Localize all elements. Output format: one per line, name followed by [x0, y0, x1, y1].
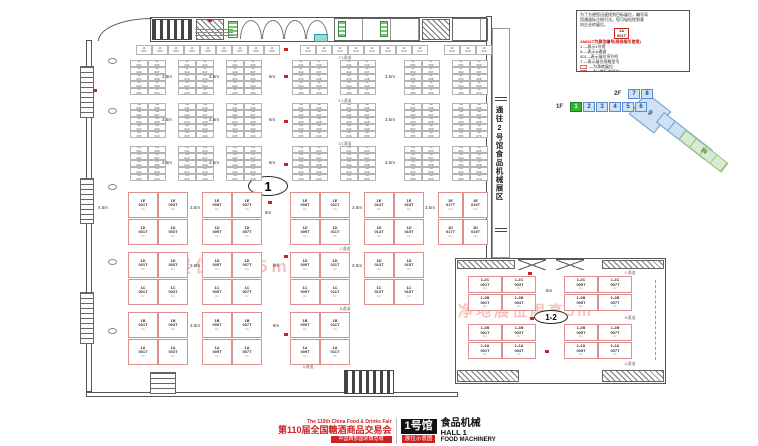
booth-cell: 1F018 [444, 45, 460, 55]
booth-cell: 1D013 [178, 160, 196, 167]
red-marker [268, 201, 272, 204]
booth-cell: 1F030 [244, 88, 262, 95]
booth-cell: 1E069 [470, 124, 488, 131]
booth-cell: 1F003 [130, 74, 148, 81]
aisle-width-label: 3.5m [352, 205, 362, 210]
booth-cell: 1D070 [470, 174, 488, 181]
booth-label: 3m [377, 295, 381, 299]
column-pillar [108, 328, 117, 334]
navigator-hall10[interactable]: 10 [679, 130, 729, 173]
booth-cell: 1E014 [178, 124, 196, 131]
booth-cell: 1E022 [226, 110, 244, 117]
booth-cell: 1-2B007T3m [598, 324, 632, 341]
booth-cell: 1F035 [292, 88, 310, 95]
aisle-width-label: 3.5m [425, 205, 435, 210]
booth-label: 3m [517, 305, 521, 309]
booth-cell: 1E039 [310, 124, 328, 131]
booth-label: 010 [154, 135, 159, 138]
booth-label: 008 [253, 50, 258, 53]
booth-label: 030 [250, 135, 255, 138]
booth-cell: 1E059 [422, 124, 440, 131]
booth-cell: 1D058 [422, 160, 440, 167]
booth-cell: 1E003 [130, 117, 148, 124]
booth-cell: 1D017 [196, 153, 214, 160]
aisle-name-label: C通道 [340, 246, 351, 252]
booth-label: 3m [215, 328, 219, 332]
booth-cell: 1D009T3m [290, 219, 320, 245]
booth-label: 3m [377, 268, 381, 272]
booth-cell: 1F028 [244, 74, 262, 81]
booth-cell: 1F009 [148, 81, 166, 88]
aisle-name-label: C通道 [625, 270, 636, 276]
corridor-tick [495, 97, 507, 101]
booth-cell: 1E027 [244, 110, 262, 117]
booth-cell: 1F053 [404, 74, 422, 81]
booth-cell: 1F050 [358, 88, 376, 95]
escalator-bottom [344, 370, 394, 394]
booth-label: 065 [458, 178, 463, 181]
booth-cell: 1A011T3m [320, 339, 350, 365]
booth-cell: 1E030 [244, 131, 262, 138]
booth-label: 3m [407, 235, 411, 239]
booth-label: 3m [377, 235, 381, 239]
red-marker [284, 333, 288, 336]
escalator-block [152, 19, 192, 40]
hall-badge-sub: 展位示意图 [402, 435, 436, 443]
booth-label: 3m [171, 355, 175, 359]
booth-label: 015 [184, 135, 189, 138]
booth-cell: 1D016 [196, 146, 214, 153]
booth-label: 025 [232, 92, 237, 95]
booth-label: 013 [353, 50, 358, 53]
booth-label: 010 [154, 178, 159, 181]
legend-intro-line: 向企业的展位。 [580, 23, 686, 28]
booth-cell: 1F062 [452, 67, 470, 74]
booth-cell: 1F009 [264, 45, 280, 55]
booth-label: 018 [449, 50, 454, 53]
booth-label: 017 [417, 50, 422, 53]
booth-cell: 1-2A007T3m [598, 342, 632, 359]
footer-divider [396, 418, 397, 444]
booth-label: 040 [316, 135, 321, 138]
booth-cell: 1F019 [460, 45, 476, 55]
booth-label: 005 [136, 178, 141, 181]
booth-cell: 1F020 [196, 88, 214, 95]
booth-cell: 1D036 [310, 146, 328, 153]
booth-cell: 1D001 [130, 146, 148, 153]
booth-label: 3m [171, 268, 175, 272]
stairs-left [80, 66, 94, 118]
booth-cell: 1D053 [404, 160, 422, 167]
booth-label: 004 [189, 50, 194, 53]
booth-cell: 1E052 [404, 110, 422, 117]
booth-cell: 1D015T3m [394, 252, 424, 278]
booth-cell: 1D015 [178, 174, 196, 181]
booth-cell: 1D056 [422, 146, 440, 153]
booth-cell: 1F059 [422, 81, 440, 88]
booth-label: 005 [205, 50, 210, 53]
service-room [338, 21, 346, 37]
booth-cell: 1D033 [292, 160, 310, 167]
booth-cell: 1-2B005T3m [564, 294, 598, 311]
booth-cell: 1F022 [226, 67, 244, 74]
booth-cell: 1D003T3m [158, 219, 188, 245]
booth-cell: 1F011 [178, 60, 196, 67]
navigator-hall-2[interactable]: 2 [583, 102, 595, 112]
booth-label: 3m [483, 353, 487, 357]
booth-cell: 1E007 [148, 110, 166, 117]
booth-cell: 1F063 [452, 74, 470, 81]
booth-label: 015 [385, 50, 390, 53]
booth-cell: 1D022 [226, 153, 244, 160]
booth-cell: 1F019 [196, 81, 214, 88]
curved-wall [98, 18, 152, 41]
navigator-hall-4[interactable]: 4 [609, 102, 621, 112]
booth-cell: 1D065 [452, 174, 470, 181]
booth-cell: 1E045 [340, 131, 358, 138]
booth-cell: 1D034 [292, 167, 310, 174]
booth-cell: 1-2B003T3m [502, 324, 536, 341]
annex-hatch [602, 260, 664, 269]
booth-label: 045 [346, 135, 351, 138]
booth-cell: 1D059 [422, 167, 440, 174]
booth-cell: 1-2C001T3m [468, 276, 502, 293]
booth-label: 3m [517, 353, 521, 357]
booth-cell: 1C011T3m [320, 279, 350, 305]
aisle-width-label: 3.5m [209, 74, 219, 79]
booth-cell: 1F040 [310, 88, 328, 95]
booth-cell: 1B009T3m [290, 312, 320, 338]
booth-cell: 1D011 [178, 146, 196, 153]
booth-cell: 1D067 [470, 153, 488, 160]
booth-cell: 1E025 [226, 131, 244, 138]
booth-cell: 1E023 [226, 117, 244, 124]
corridor-tick [495, 228, 507, 232]
booth-cell: 1E050 [358, 131, 376, 138]
booth-cell: 1D001T3m [128, 252, 158, 278]
booth-label: 3m [215, 295, 219, 299]
booth-cell: 1E057 [422, 110, 440, 117]
booth-cell: 1D005 [130, 174, 148, 181]
booth-label: 3m [245, 328, 249, 332]
navigator-hall-5[interactable]: 5 [622, 102, 634, 112]
booth-cell: 1D026 [244, 146, 262, 153]
booth-cell: 1D042 [340, 153, 358, 160]
booth-cell: 1F015 [380, 45, 396, 55]
booth-label: 001 [141, 50, 146, 53]
booth-label: 011 [322, 50, 327, 53]
aisle-name-label: B通道 [625, 315, 636, 321]
booth-label: 3m [245, 295, 249, 299]
aisle-name-label: D1通道 [338, 141, 351, 147]
legend-example-booth: 1A 001T [614, 28, 629, 39]
booth-label: 3m [215, 235, 219, 239]
booth-cell: 1E043 [340, 117, 358, 124]
legend-swatches: —为净地展位—为A类标准展位—为B类标准展位—为C类标准展位 [580, 64, 686, 72]
annex-dashed-line [655, 280, 656, 360]
booth-cell: 1F006 [216, 45, 232, 55]
booth-cell: 1F010 [300, 45, 316, 55]
navigator-hall-8[interactable]: 8 [641, 89, 653, 99]
booth-cell: 1E065 [452, 131, 470, 138]
navigator-hall-1[interactable]: 1 [570, 102, 582, 112]
booth-label: 3m [141, 295, 145, 299]
booth-label: 015 [184, 92, 189, 95]
booth-cell: 1F064 [452, 81, 470, 88]
red-marker [284, 48, 288, 51]
booth-cell: 1E070 [470, 131, 488, 138]
booth-cell: 1D003 [130, 160, 148, 167]
booth-cell: 1F024 [226, 81, 244, 88]
booth-label: 3m [303, 328, 307, 332]
booth-cell: 1E060 [422, 131, 440, 138]
booth-label: 055 [410, 92, 415, 95]
booth-cell: 1F039 [310, 81, 328, 88]
booth-cell: 1E015 [178, 131, 196, 138]
booth-label: 3m [303, 268, 307, 272]
booth-cell: 1F037 [310, 67, 328, 74]
floor-plan: 通往2号馆食品机械展区 净地展位限高5m 净地展位限高5m 1 1-2 为了方便… [0, 0, 758, 446]
booth-cell: 1F058 [422, 74, 440, 81]
booth-cell: 1F023 [226, 74, 244, 81]
booth-cell: 1F003 [168, 45, 184, 55]
booth-cell: 1F041 [340, 60, 358, 67]
booth-cell: 1-2B007T3m [598, 294, 632, 311]
aisle-width-label: 6m [273, 323, 279, 328]
aisle-width-label: 3.5m [162, 117, 172, 122]
booth-cell: 1D038 [310, 160, 328, 167]
booth-cell: 1D029 [244, 167, 262, 174]
booth-label: 3m [579, 335, 583, 339]
navigator-hall-7[interactable]: 7 [628, 89, 640, 99]
booth-cell: 1D023 [226, 160, 244, 167]
booth-cell: 1D049 [358, 167, 376, 174]
booth-cell: 1F068 [470, 74, 488, 81]
booth-cell: 1E009T3m [290, 192, 320, 218]
booth-cell: 1C005T3m [202, 279, 232, 305]
booth-label: 3m [448, 235, 452, 239]
booth-cell: 1E011T3m [320, 192, 350, 218]
booth-cell: 1E024 [226, 124, 244, 131]
navigator-hall-6[interactable]: 6 [635, 102, 647, 112]
aisle-width-label: 6m [273, 263, 279, 268]
booth-label: 055 [410, 135, 415, 138]
stairs-left [80, 178, 94, 224]
booth-label: 3m [613, 353, 617, 357]
booth-cell: 1D039 [310, 167, 328, 174]
booth-cell: 1F005 [130, 88, 148, 95]
booth-cell: 1D057 [422, 153, 440, 160]
hall-name-block: 食品机械 HALL 1 FOOD MACHINERY [441, 417, 496, 445]
swatch-chip-icon [580, 65, 587, 69]
booth-cell: 1F016 [396, 45, 412, 55]
booth-label: 3m [579, 305, 583, 309]
booth-label: 030 [250, 92, 255, 95]
booth-cell: 1C013T3m [364, 279, 394, 305]
booth-cell: 1E036 [310, 103, 328, 110]
booth-label: 040 [316, 92, 321, 95]
booth-label: 060 [428, 135, 433, 138]
booth-cell: 1E016 [196, 103, 214, 110]
booth-cell: 1D055 [404, 174, 422, 181]
booth-cell: 1E019 [196, 124, 214, 131]
booth-cell: 1-2B001T3m [468, 324, 502, 341]
booth-label: 3m [171, 208, 175, 212]
booth-label: 3m [579, 287, 583, 291]
hall-badge: 1号馆 [401, 419, 437, 434]
booth-label: 3m [483, 335, 487, 339]
booth-label: 065 [458, 135, 463, 138]
booth-cell: 1D024 [226, 167, 244, 174]
booth-label: 3m [407, 268, 411, 272]
booth-label: 009 [269, 50, 274, 53]
booth-cell: 1F046 [358, 60, 376, 67]
booth-cell: 1E038 [310, 117, 328, 124]
aisle-width-label: 6m [269, 160, 275, 165]
booth-label: 3m [215, 355, 219, 359]
room-annotation-marks [195, 29, 233, 37]
booth-cell: 1F045 [340, 88, 358, 95]
booth-cell: 1C001T3m [128, 279, 158, 305]
booth-cell: 1E005 [130, 131, 148, 138]
booth-cell: 1B003T3m [158, 312, 188, 338]
booth-cell: 1D007 [148, 153, 166, 160]
column-pillar [108, 259, 117, 265]
booth-cell: 1E002 [130, 110, 148, 117]
booth-cell: 1D005T3m [202, 252, 232, 278]
booth-cell: 1A007T3m [232, 339, 262, 365]
aisle-name-label: A通道 [625, 361, 636, 367]
booth-cell: 1B005T3m [202, 312, 232, 338]
booth-cell: 1F051 [404, 60, 422, 67]
annex-hatch [457, 260, 515, 269]
booth-cell: 1E053 [404, 117, 422, 124]
booth-cell: 1F034 [292, 81, 310, 88]
booth-label: 030 [250, 178, 255, 181]
booth-cell: 1D002 [130, 153, 148, 160]
booth-label: 015 [184, 178, 189, 181]
booth-cell: 1F007 [148, 67, 166, 74]
aisle-width-label: 6m [269, 117, 275, 122]
booth-label: 016 [401, 50, 406, 53]
booth-cell: 1F017 [412, 45, 428, 55]
booth-cell: 1E067 [470, 110, 488, 117]
aisle-width-label: 6m [265, 210, 271, 215]
booth-cell: 1D017T3m [438, 219, 463, 245]
booth-label: 3m [141, 208, 145, 212]
booth-label: 3m [377, 208, 381, 212]
booth-cell: 1F069 [470, 81, 488, 88]
booth-cell: 1F017 [196, 67, 214, 74]
navigator-hall-3[interactable]: 3 [596, 102, 608, 112]
booth-cell: 1E001T3m [128, 192, 158, 218]
aisle-width-label: 3.5m [162, 160, 172, 165]
hall-name-en: HALL 1 [441, 429, 496, 437]
hall-name-en2: FOOD MACHINERY [441, 437, 496, 444]
booth-cell: 1-2B005T3m [564, 324, 598, 341]
booth-cell: 1D060 [422, 174, 440, 181]
booth-cell: 1F014 [364, 45, 380, 55]
booth-label: 010 [154, 92, 159, 95]
booth-cell: 1D011T3m [320, 252, 350, 278]
column-pillar [108, 184, 117, 190]
booth-cell: 1F042 [340, 67, 358, 74]
aisle-width-label: 5m [546, 288, 552, 293]
annex-hatch [602, 370, 664, 382]
booth-cell: 1D030 [244, 174, 262, 181]
booth-cell: 1F070 [470, 88, 488, 95]
booth-cell: 1E068 [470, 117, 488, 124]
booth-cell: 1F011 [316, 45, 332, 55]
booth-cell: 1D010 [148, 174, 166, 181]
booth-label: 020 [481, 50, 486, 53]
booth-cell: 1F020 [476, 45, 492, 55]
booth-cell: 1F013 [348, 45, 364, 55]
booth-label: 005 [136, 92, 141, 95]
red-marker [528, 272, 532, 275]
booth-cell: 1D045 [340, 174, 358, 181]
red-marker [530, 317, 534, 320]
booth-cell: 1E009 [148, 124, 166, 131]
booth-label: 002 [157, 50, 162, 53]
booth-label: 3m [333, 208, 337, 212]
booth-cell: 1D019 [196, 167, 214, 174]
booth-label: 010 [305, 50, 310, 53]
booth-label: 3m [517, 335, 521, 339]
booth-label: 3m [141, 235, 145, 239]
booth-cell: 1D068 [470, 160, 488, 167]
booth-cell: 1E062 [452, 110, 470, 117]
corridor-label: 通往2号馆食品机械展区 [494, 106, 505, 224]
red-marker [284, 120, 288, 123]
booth-label: 3m [333, 328, 337, 332]
booth-cell: 1F036 [310, 60, 328, 67]
stairs-bottom [150, 372, 176, 394]
booth-cell: 1B007T3m [232, 312, 262, 338]
booth-label: 3m [483, 305, 487, 309]
booth-label: 3m [333, 295, 337, 299]
booth-label: 3m [473, 208, 477, 212]
booth-label: 006 [221, 50, 226, 53]
booth-cell: 1C007T3m [232, 279, 262, 305]
booth-cell: 1E011 [178, 103, 196, 110]
booth-cell: 1-2C007T3m [598, 276, 632, 293]
booth-label: 3m [517, 287, 521, 291]
booth-cell: 1D028 [244, 160, 262, 167]
booth-cell: 1E029 [244, 124, 262, 131]
booth-cell: 1D037 [310, 153, 328, 160]
booth-cell: 1E040 [310, 131, 328, 138]
annex-door [556, 259, 584, 270]
booth-cell: 1F027 [244, 67, 262, 74]
booth-cell: 1C015T3m [394, 279, 424, 305]
booth-label: 070 [476, 178, 481, 181]
swatch-chip-icon [580, 70, 587, 72]
booth-label: 3m [473, 235, 477, 239]
aisle-width-label: 3.5m [190, 323, 200, 328]
booth-label: 3m [613, 335, 617, 339]
booth-cell: 1D007T3m [232, 252, 262, 278]
annex-hatch [457, 370, 519, 382]
booth-cell: 1D013T3m [364, 252, 394, 278]
booth-cell: 1E051 [404, 103, 422, 110]
booth-label: 007 [237, 50, 242, 53]
booth-cell: 1D047 [358, 153, 376, 160]
booth-label: 040 [316, 178, 321, 181]
booth-cell: 1F031 [292, 60, 310, 67]
booth-cell: 1F001 [130, 60, 148, 67]
booth-cell: 1A009T3m [290, 339, 320, 365]
